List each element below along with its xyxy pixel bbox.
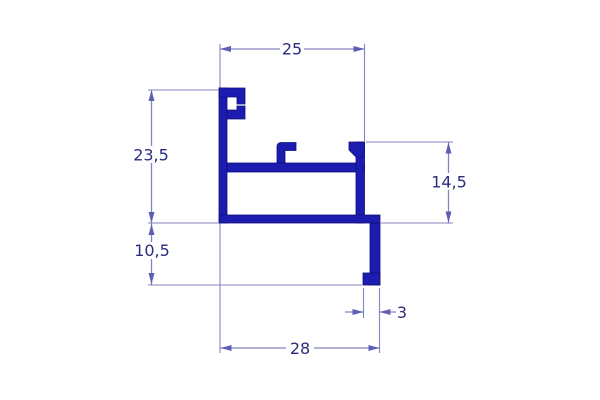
profile-cross-section [219, 88, 380, 285]
arrowhead-up [149, 224, 155, 235]
profile-center-hook [277, 143, 296, 164]
dimension-bottom-width: 28 [221, 339, 380, 358]
dimension-label-lower-left-height: 10,5 [134, 241, 170, 260]
profile-top-clip-lower-tooth [227, 106, 245, 119]
profile-drawing: 25 23,5 10,5 14,5 [0, 0, 600, 400]
arrowhead-right [353, 309, 364, 315]
dimension-lower-left-height: 10,5 [132, 223, 171, 285]
profile-middle-flange [227, 163, 365, 172]
arrowhead-left [221, 345, 232, 351]
dimension-label-right-height: 14,5 [431, 173, 467, 192]
arrowhead-left [220, 46, 231, 52]
dimension-upper-left-height: 23,5 [132, 90, 171, 223]
dimension-label-upper-left-height: 23,5 [133, 146, 169, 165]
dimension-right-height: 14,5 [430, 142, 468, 223]
arrowhead-right [369, 345, 380, 351]
profile-bottom-flange [219, 215, 380, 223]
dimension-top-width: 25 [220, 40, 365, 59]
profile-bottom-foot [363, 273, 380, 285]
profile-right-hook-head [349, 142, 365, 157]
arrowhead-right [354, 46, 365, 52]
technical-drawing-canvas: 25 23,5 10,5 14,5 [0, 0, 600, 400]
dimension-label-top-width: 25 [282, 40, 302, 59]
arrowhead-up [149, 90, 155, 101]
dimension-label-bottom-width: 28 [290, 339, 310, 358]
arrowhead-up [446, 143, 452, 154]
profile-left-web [219, 88, 227, 223]
arrowhead-down [446, 212, 452, 223]
arrowhead-down [149, 212, 155, 223]
extension-lines [148, 44, 453, 353]
arrowhead-down [149, 273, 155, 284]
dimension-label-bottom-tab-width: 3 [397, 303, 407, 322]
dimension-bottom-tab-width: 3 [345, 303, 407, 322]
arrowhead-left [380, 309, 391, 315]
